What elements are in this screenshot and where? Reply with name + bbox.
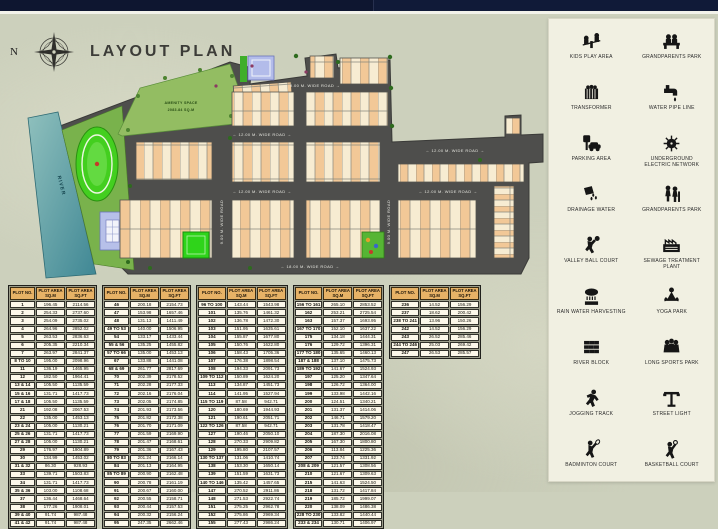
- area-sqft-cell: 285.57: [450, 350, 479, 357]
- plot-no-cell: 219: [295, 495, 323, 502]
- table-row: 4264.962852.02: [10, 326, 95, 333]
- legend-item-underground-electric-network: UNDERGROUND ELECTRIC NETWORK: [632, 129, 713, 179]
- area-sqft-cell: 1503.83: [66, 471, 95, 478]
- area-sqft-cell: 2922.74: [257, 495, 286, 502]
- road-label-mid3: ← 12.00 M. WIDE ROAD →: [419, 189, 478, 194]
- area-sqft-cell: 1657.46: [160, 309, 189, 316]
- legend-item-label: WATER PIPE LINE: [649, 105, 695, 111]
- plot-no-cell: 22: [10, 415, 35, 422]
- plot-no-cell: 233 & 234: [295, 520, 323, 527]
- area-sqft-cell: 1631.73: [257, 471, 286, 478]
- table-row: 11136.191465.95: [10, 366, 95, 373]
- area-sqft-cell: 1543.98: [257, 301, 286, 308]
- plot-no-cell: 108: [198, 366, 226, 373]
- area-sqft-cell: 2162.48: [160, 471, 189, 478]
- area-sqft-cell: 2962.78: [257, 504, 286, 511]
- table-row: 12182.501964.41: [10, 374, 95, 381]
- legend-item-label: RAIN WATER HARVESTING: [557, 309, 626, 315]
- table-row: 228 TO 230133.821440.44: [295, 512, 383, 519]
- area-sqm-cell: 265.10: [323, 301, 352, 308]
- plot-no-cell: 96 TO 100: [198, 301, 226, 308]
- plot-table-header: PLOT AREA SQ.FT: [66, 287, 95, 300]
- plot-no-cell: 205: [295, 439, 323, 446]
- plot-no-cell: 35 & 36: [10, 487, 35, 494]
- table-row: 6205.352210.34: [10, 342, 95, 349]
- table-row: 189 TO 192141.671524.93: [295, 366, 383, 373]
- plot-no-cell: 215: [295, 479, 323, 486]
- area-sqm-cell: 26.53: [420, 350, 449, 357]
- legend-item-label: JOGGING TRACK: [569, 411, 613, 417]
- table-row: 127190.462050.10: [198, 431, 286, 438]
- table-row: 21192.082067.53: [10, 406, 95, 413]
- plot-no-cell: 210: [295, 471, 323, 478]
- area-sqft-cell: 1135.59: [66, 398, 95, 405]
- plot-no-cell: 17 & 18: [10, 398, 35, 405]
- area-sqft-cell: 1650.14: [257, 463, 286, 470]
- area-sqm-cell: 270.33: [227, 439, 256, 446]
- area-sqm-cell: 135.76: [227, 309, 256, 316]
- area-sqm-cell: 135.00: [36, 415, 65, 422]
- area-sqft-cell: 2166.14: [160, 455, 189, 462]
- area-sqft-cell: 987.48: [66, 520, 95, 527]
- table-row: 206113.841225.36: [295, 447, 383, 454]
- table-row: 27 & 28105.001130.21: [10, 439, 95, 446]
- area-sqm-cell: 152.10: [323, 326, 352, 333]
- table-row: 34131.711417.73: [10, 479, 95, 486]
- plot-table-header: PLOT AREA SQ.M: [36, 287, 65, 300]
- table-row: 138153.301650.14: [198, 463, 286, 470]
- plot-no-cell: 48: [104, 317, 129, 324]
- plot-no-cell: 94: [104, 512, 129, 519]
- area-sqft-cell: 156.29: [450, 326, 479, 333]
- plot-table-1: PLOT NO.PLOT AREA SQ.MPLOT AREA SQ.FT119…: [8, 285, 97, 529]
- plot-area-tables: PLOT NO.PLOT AREA SQ.MPLOT AREA SQ.FT119…: [8, 285, 481, 529]
- area-sqft-cell: 2050.10: [257, 431, 286, 438]
- area-sqft-cell: 2164.95: [160, 463, 189, 470]
- area-sqm-cell: 158.43: [227, 350, 256, 357]
- area-sqm-cell: 14.52: [420, 326, 449, 333]
- plot-no-cell: 75: [104, 415, 129, 422]
- table-row: 55 & 56135.251455.82: [104, 342, 189, 349]
- plot-no-cell: 200: [295, 398, 323, 405]
- yoga-park-icon: [661, 286, 682, 307]
- grandparents-park-2-icon: [661, 184, 682, 205]
- area-sqft-cell: 1410.74: [257, 455, 286, 462]
- area-sqft-cell: 1465.95: [66, 366, 95, 373]
- table-row: 140 TO 146135.421457.65: [198, 479, 286, 486]
- plot-no-cell: 201: [295, 406, 323, 413]
- area-sqft-cell: 2909.82: [257, 439, 286, 446]
- plot-no-cell: 138: [198, 463, 226, 470]
- area-sqm-cell: 131.71: [36, 479, 65, 486]
- plot-no-cell: 114: [198, 390, 226, 397]
- plot-no-cell: 206: [295, 447, 323, 454]
- table-row: 72202.162176.04: [104, 390, 189, 397]
- area-sqm-cell: 190.46: [227, 431, 256, 438]
- plot-no-cell: 46: [104, 301, 129, 308]
- plot-table-header: PLOT NO.: [104, 287, 129, 300]
- area-sqm-cell: 134.18: [323, 334, 352, 341]
- area-sqft-cell: 942.71: [257, 423, 286, 430]
- legend-item-label: GRANDPARENTS PARK: [642, 207, 701, 213]
- legend-item-grandparents-park: GRANDPARENTS PARK: [632, 180, 713, 230]
- area-sqm-cell: 200.44: [130, 504, 159, 511]
- plot-no-cell: 55 & 56: [104, 342, 129, 349]
- plot-no-cell: 80 TO 83: [104, 455, 129, 462]
- area-sqm-cell: 138.09: [323, 504, 352, 511]
- area-sqft-cell: 1457.65: [257, 479, 286, 486]
- table-row: 156 TO 161265.102853.52: [295, 301, 383, 308]
- plot-no-cell: 79: [104, 447, 129, 454]
- road-label-bottom: ← 18.00 M. WIDE ROAD →: [281, 264, 340, 269]
- sewage-treatment-plant-icon: [661, 235, 682, 256]
- area-sqm-cell: 86.30: [36, 463, 65, 470]
- plot-no-cell: 204: [295, 431, 323, 438]
- area-sqft-cell: 1441.08: [160, 358, 189, 365]
- table-row: 35 & 36103.001108.68: [10, 487, 95, 494]
- plot-table-header: PLOT AREA SQ.FT: [160, 287, 189, 300]
- legend-item-sewage-treatment-plant: SEWAGE TREATMENT PLANT: [632, 231, 713, 281]
- table-row: 220138.091486.38: [295, 504, 383, 511]
- plot-no-cell: 198: [295, 382, 323, 389]
- area-sqm-cell: 121.57: [323, 463, 352, 470]
- area-sqm-cell: 105.00: [36, 439, 65, 446]
- legend-item-long-sports-park: LONG SPORTS PARK: [632, 333, 713, 383]
- table-row: 129195.802107.57: [198, 447, 286, 454]
- table-row: 33139.711503.83: [10, 471, 95, 478]
- area-sqm-cell: 201.47: [130, 439, 159, 446]
- legend-item-valley-ball-court: VALLEY BALL COURT: [551, 231, 632, 281]
- area-sqft-cell: 156.29: [450, 301, 479, 308]
- plot-no-cell: 208 & 209: [295, 463, 323, 470]
- legend-item-label: TRANSFORMER: [571, 105, 612, 111]
- plot-no-cell: 109 TO 112: [198, 374, 226, 381]
- area-sqm-cell: 200.32: [130, 512, 159, 519]
- plot-no-cell: 167 TO 170: [295, 326, 323, 333]
- table-row: 57 TO 66135.001453.13: [104, 350, 189, 357]
- table-row: 128270.332909.82: [198, 439, 286, 446]
- area-sqm-cell: 201.93: [130, 406, 159, 413]
- area-sqm-cell: 133.17: [130, 334, 159, 341]
- plot-table-header: PLOT NO.: [295, 287, 323, 300]
- area-sqft-cell: 2098.96: [66, 358, 95, 365]
- area-sqft-cell: 2171.09: [160, 423, 189, 430]
- table-row: 67133.881441.08: [104, 358, 189, 365]
- area-sqm-cell: 131.37: [323, 406, 352, 413]
- area-sqft-cell: 2662.46: [160, 520, 189, 527]
- amenity-label-1: AMENITY SPACE: [164, 101, 197, 105]
- legend-grid: KIDS PLAY AREAGRANDPARENTS PARKTRANSFORM…: [549, 19, 714, 493]
- plot-no-cell: 115 TO 119: [198, 398, 226, 405]
- table-row: 49 TO 53140.001506.95: [104, 326, 189, 333]
- area-sqm-cell: 195.00: [36, 358, 65, 365]
- table-row: 70202.392178.52: [104, 374, 189, 381]
- area-sqm-cell: 129.72: [323, 342, 352, 349]
- area-sqft-cell: 2157.53: [160, 504, 189, 511]
- area-sqm-cell: 196.45: [36, 301, 65, 308]
- plot-no-cell: 1: [10, 301, 35, 308]
- legend-item-yoga-park: YOGA PARK: [632, 282, 713, 332]
- plot-no-cell: 25 & 26: [10, 431, 35, 438]
- plot-table-2: PLOT NO.PLOT AREA SQ.MPLOT AREA SQ.FT462…: [102, 285, 191, 529]
- legend-item-badminton-court: BADMINTON COURT: [551, 435, 632, 485]
- table-row: 176129.721396.31: [295, 342, 383, 349]
- river-block-icon: [581, 337, 602, 358]
- legend-item-kids-play-area: KIDS PLAY AREA: [551, 27, 632, 77]
- table-row: 114141.951527.94: [198, 390, 286, 397]
- plot-no-cell: 106: [198, 350, 226, 357]
- area-sqm-cell: 167.30: [323, 439, 352, 446]
- legend-item-transformer: TRANSFORMER: [551, 78, 632, 128]
- plot-table-header: PLOT AREA SQ.M: [420, 287, 449, 300]
- area-sqft-cell: 2176.04: [160, 390, 189, 397]
- table-row: 187 & 188137.101475.73: [295, 358, 383, 365]
- plot-no-cell: 70: [104, 374, 129, 381]
- area-sqft-cell: 1635.61: [257, 326, 286, 333]
- table-row: 8 TO 10195.002098.96: [10, 358, 95, 365]
- table-row: 244 TO 24625.03269.42: [391, 342, 479, 349]
- area-sqft-cell: 285.46: [450, 334, 479, 341]
- legend-item-jogging-track: JOGGING TRACK: [551, 384, 632, 434]
- area-sqft-cell: 1440.44: [353, 512, 382, 519]
- area-sqm-cell: 105.00: [36, 423, 65, 430]
- table-row: 109 TO 112150.891624.20: [198, 374, 286, 381]
- legend-item-grandparents-park: GRANDPARENTS PARK: [632, 27, 713, 77]
- plot-no-cell: 218: [295, 487, 323, 494]
- area-sqft-cell: 2169.90: [160, 431, 189, 438]
- plot-no-cell: 101: [198, 309, 226, 316]
- table-row: 102136.781472.30: [198, 317, 286, 324]
- table-row: 95247.352662.46: [104, 520, 189, 527]
- area-sqft-cell: 1417.84: [353, 487, 382, 494]
- area-sqft-cell: 2160.00: [160, 487, 189, 494]
- road-label-mid2: ← 12.00 M. WIDE ROAD →: [233, 189, 292, 194]
- table-row: 24726.53285.57: [391, 350, 479, 357]
- table-row: 139151.591631.73: [198, 471, 286, 478]
- area-sqft-cell: 2067.53: [66, 406, 95, 413]
- area-sqm-cell: 151.59: [227, 471, 256, 478]
- area-sqft-cell: 2836.63: [66, 334, 95, 341]
- area-sqft-cell: 1418.47: [353, 423, 382, 430]
- plot-no-cell: 176: [295, 342, 323, 349]
- plot-no-cell: 47: [104, 309, 129, 316]
- area-sqft-cell: 1999.07: [353, 495, 382, 502]
- area-sqm-cell: 271.53: [227, 495, 256, 502]
- table-row: 3254.092735.02: [10, 317, 95, 324]
- area-sqm-cell: 151.95: [227, 326, 256, 333]
- plot-no-cell: 243: [391, 334, 419, 341]
- plot-no-cell: 238 TO 241: [391, 317, 419, 324]
- parking-area-icon: P: [581, 133, 602, 154]
- area-sqm-cell: 176.97: [36, 447, 65, 454]
- area-sqm-cell: 202.05: [130, 398, 159, 405]
- area-sqft-cell: 1309.63: [353, 471, 382, 478]
- plot-no-cell: 95: [104, 520, 129, 527]
- table-row: 199133.981442.16: [295, 390, 383, 397]
- plot-no-cell: 31 & 32: [10, 463, 35, 470]
- plot-no-cell: 12: [10, 374, 35, 381]
- plot-no-cell: 140 TO 146: [198, 479, 226, 486]
- plot-no-cell: 30: [10, 455, 35, 462]
- plot-no-cell: 121: [198, 415, 226, 422]
- plot-no-cell: 105: [198, 342, 226, 349]
- table-row: 200124.511340.21: [295, 398, 383, 405]
- area-sqft-cell: 1506.95: [160, 326, 189, 333]
- plot-no-cell: 220: [295, 504, 323, 511]
- legend-item-label: PARKING AREA: [572, 156, 611, 162]
- area-sqft-cell: 1453.13: [66, 415, 95, 422]
- plot-no-cell: 127: [198, 431, 226, 438]
- area-sqft-cell: 2156.24: [160, 512, 189, 519]
- plot-no-cell: 207: [295, 455, 323, 462]
- area-sqm-cell: 200.67: [130, 487, 159, 494]
- area-sqm-cell: 155.87: [227, 334, 256, 341]
- table-row: 122 TO 12687.58942.71: [198, 423, 286, 430]
- table-row: 85 TO 89200.902162.48: [104, 471, 189, 478]
- plot-no-cell: 38: [10, 504, 35, 511]
- area-sqm-cell: 18.62: [420, 309, 449, 316]
- plot-table-header: PLOT AREA SQ.FT: [353, 287, 382, 300]
- area-sqft-cell: 2091.73: [257, 366, 286, 373]
- area-sqm-cell: 133.98: [323, 390, 352, 397]
- area-sqft-cell: 1527.94: [257, 390, 286, 397]
- area-sqm-cell: 131.71: [36, 431, 65, 438]
- table-row: 121190.612051.71: [198, 415, 286, 422]
- area-sqft-cell: 2178.52: [160, 374, 189, 381]
- area-sqft-cell: 1693.95: [353, 317, 382, 324]
- area-sqm-cell: 150.76: [227, 342, 256, 349]
- area-sqft-cell: 2161.19: [160, 479, 189, 486]
- table-row: 38177.261908.01: [10, 504, 95, 511]
- plot-no-cell: 122 TO 126: [198, 423, 226, 430]
- plot-no-cell: 7: [10, 350, 35, 357]
- table-row: 208 & 209121.571308.56: [295, 463, 383, 470]
- plot-no-cell: 57 TO 66: [104, 350, 129, 357]
- plot-no-cell: 199: [295, 390, 323, 397]
- plot-no-cell: 73: [104, 398, 129, 405]
- plot-no-cell: 139: [198, 471, 226, 478]
- plot-no-cell: 3: [10, 317, 35, 324]
- area-sqm-cell: 140.00: [130, 326, 159, 333]
- area-sqm-cell: 113.84: [323, 447, 352, 454]
- area-sqm-cell: 201.24: [130, 455, 159, 462]
- water-pipe-line-icon: [661, 82, 682, 103]
- area-sqm-cell: 136.44: [36, 495, 65, 502]
- area-sqft-cell: 1624.20: [257, 374, 286, 381]
- area-sqm-cell: 180.69: [227, 406, 256, 413]
- table-row: 37136.441468.64: [10, 495, 95, 502]
- area-sqft-cell: 200.42: [450, 309, 479, 316]
- table-row: 101135.761461.32: [198, 309, 286, 316]
- table-row: 7263.972841.37: [10, 350, 95, 357]
- plot-no-cell: 68 & 69: [104, 366, 129, 373]
- area-sqm-cell: 134.87: [227, 382, 256, 389]
- table-row: 75201.822172.38: [104, 415, 189, 422]
- area-sqft-cell: 2725.54: [353, 309, 382, 316]
- plot-no-cell: 71: [104, 382, 129, 389]
- area-sqm-cell: 263.97: [36, 350, 65, 357]
- area-sqm-cell: 134.99: [36, 455, 65, 462]
- plot-no-cell: 197: [295, 374, 323, 381]
- area-sqft-cell: 2172.38: [160, 415, 189, 422]
- amenity-space: [118, 64, 240, 136]
- table-row: 74201.932173.56: [104, 406, 189, 413]
- area-sqm-cell: 201.70: [130, 423, 159, 430]
- area-sqft-cell: 928.93: [66, 463, 95, 470]
- area-sqft-cell: 2911.86: [257, 487, 286, 494]
- area-sqft-cell: 2167.43: [160, 447, 189, 454]
- playground: [362, 232, 384, 258]
- area-sqm-cell: 176.38: [227, 358, 256, 365]
- area-sqft-cell: 1524.50: [353, 479, 382, 486]
- table-row: 46200.182154.73: [104, 301, 189, 308]
- legend-item-label: BASKETBALL COURT: [645, 462, 699, 468]
- table-row: 91200.672160.00: [104, 487, 189, 494]
- underground-electric-network-icon: [661, 133, 682, 154]
- area-sqft-cell: 150.26: [450, 317, 479, 324]
- table-row: 84201.132164.95: [104, 463, 189, 470]
- table-row: 96 TO 100143.441543.98: [198, 301, 286, 308]
- plot-no-cell: 91: [104, 487, 129, 494]
- plot-no-cell: 203: [295, 423, 323, 430]
- area-sqm-cell: 182.50: [36, 374, 65, 381]
- area-sqm-cell: 131.71: [36, 390, 65, 397]
- plot-no-cell: 147: [198, 487, 226, 494]
- table-row: 120180.691944.93: [198, 406, 286, 413]
- plot-no-cell: 228 TO 230: [295, 512, 323, 519]
- area-sqm-cell: 135.25: [130, 342, 159, 349]
- street-light-icon: [661, 388, 682, 409]
- area-sqm-cell: 131.13: [130, 317, 159, 324]
- area-sqm-cell: 125.20: [323, 374, 352, 381]
- area-sqft-cell: 1472.30: [257, 317, 286, 324]
- area-sqm-cell: 194.33: [227, 366, 256, 373]
- table-row: 238 TO 24113.96150.26: [391, 317, 479, 324]
- table-row: 5263.532836.63: [10, 334, 95, 341]
- area-sqft-cell: 1461.32: [257, 309, 286, 316]
- area-sqm-cell: 141.95: [227, 390, 256, 397]
- plot-no-cell: 102: [198, 317, 226, 324]
- area-sqm-cell: 190.61: [227, 415, 256, 422]
- table-row: 210121.671309.63: [295, 471, 383, 478]
- area-sqft-cell: 1130.21: [66, 439, 95, 446]
- plot-no-cell: 130 TO 137: [198, 455, 226, 462]
- area-sqft-cell: 1444.31: [353, 334, 382, 341]
- plot-no-cell: 202: [295, 415, 323, 422]
- table-row: 130 TO 137131.061410.74: [198, 455, 286, 462]
- table-row: 79201.362167.43: [104, 447, 189, 454]
- plot-table-header: PLOT AREA SQ.FT: [257, 287, 286, 300]
- table-row: 167 TO 170152.101637.22: [295, 326, 383, 333]
- area-sqm-cell: 137.10: [323, 358, 352, 365]
- area-sqm-cell: 126.72: [323, 382, 352, 389]
- legend-item-label: SEWAGE TREATMENT PLANT: [637, 258, 707, 271]
- area-sqft-cell: 1442.16: [353, 390, 382, 397]
- area-sqft-cell: 942.71: [257, 398, 286, 405]
- area-sqm-cell: 131.72: [323, 487, 352, 494]
- rain-water-harvesting-icon: [581, 286, 602, 307]
- area-sqft-cell: 1411.49: [160, 317, 189, 324]
- table-row: 202146.711579.20: [295, 415, 383, 422]
- table-row: 201131.371414.06: [295, 406, 383, 413]
- table-row: 30134.991453.02: [10, 455, 95, 462]
- table-row: 151275.252962.78: [198, 504, 286, 511]
- table-row: 77201.592169.90: [104, 431, 189, 438]
- table-row: 233 & 234130.711406.97: [295, 520, 383, 527]
- area-sqft-cell: 1130.21: [66, 423, 95, 430]
- table-row: 204187.302016.08: [295, 431, 383, 438]
- legend-item-drainage-water: DRAINAGE WATER: [551, 180, 632, 230]
